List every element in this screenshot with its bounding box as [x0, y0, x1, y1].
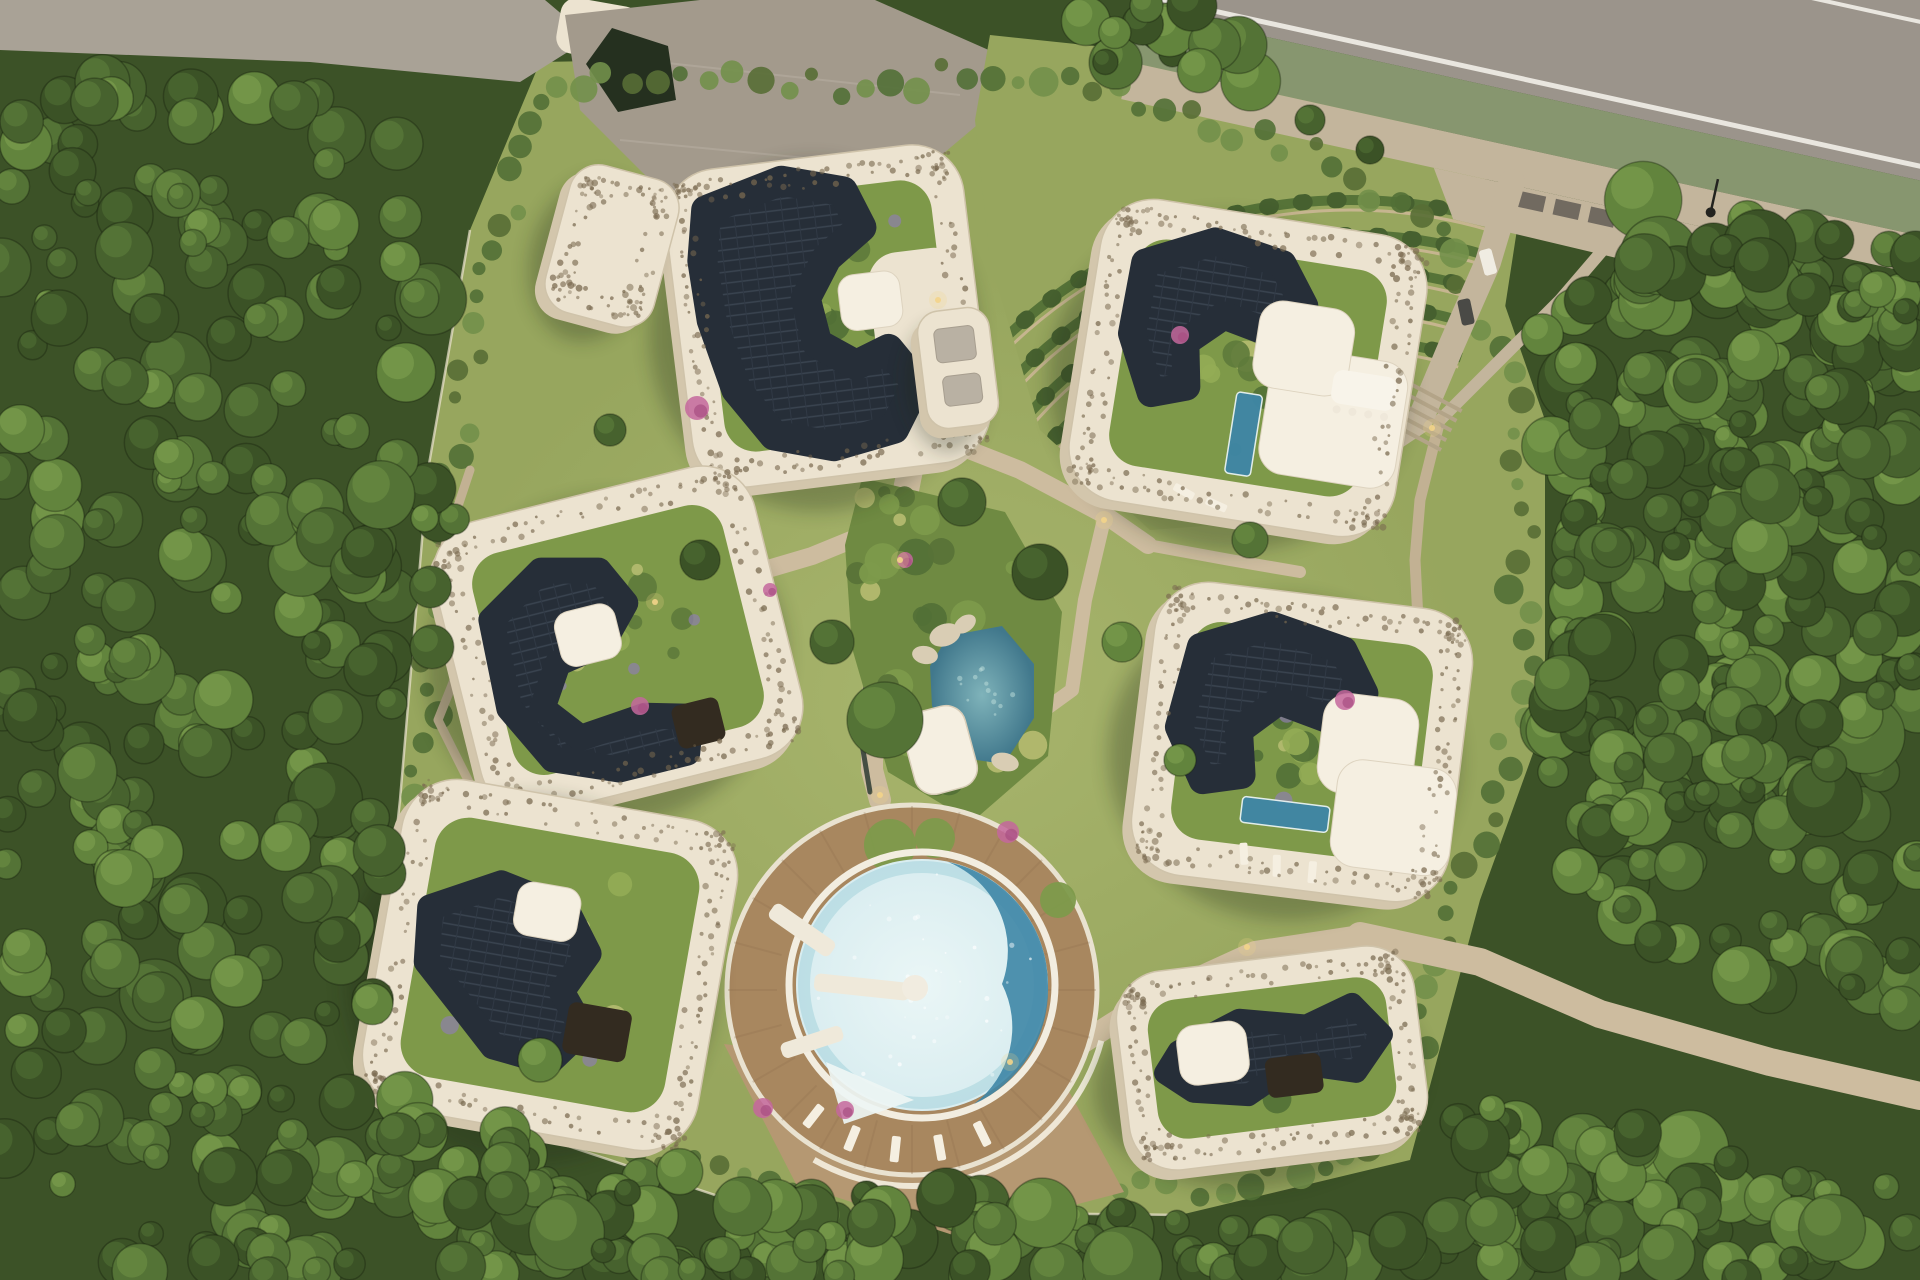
courtyard-void: [1264, 1052, 1324, 1099]
site-plan-canvas: [0, 0, 1920, 1280]
penthouse-terrace: [1327, 757, 1459, 879]
deck-chair: [1239, 843, 1248, 865]
roof-skylight: [511, 880, 583, 944]
roof-skylight: [836, 269, 904, 332]
roof-skylight: [1175, 1019, 1252, 1087]
courtyard-void: [561, 1001, 633, 1063]
aerial-architectural-render: [0, 0, 1920, 1280]
deck-chair: [1273, 855, 1281, 877]
